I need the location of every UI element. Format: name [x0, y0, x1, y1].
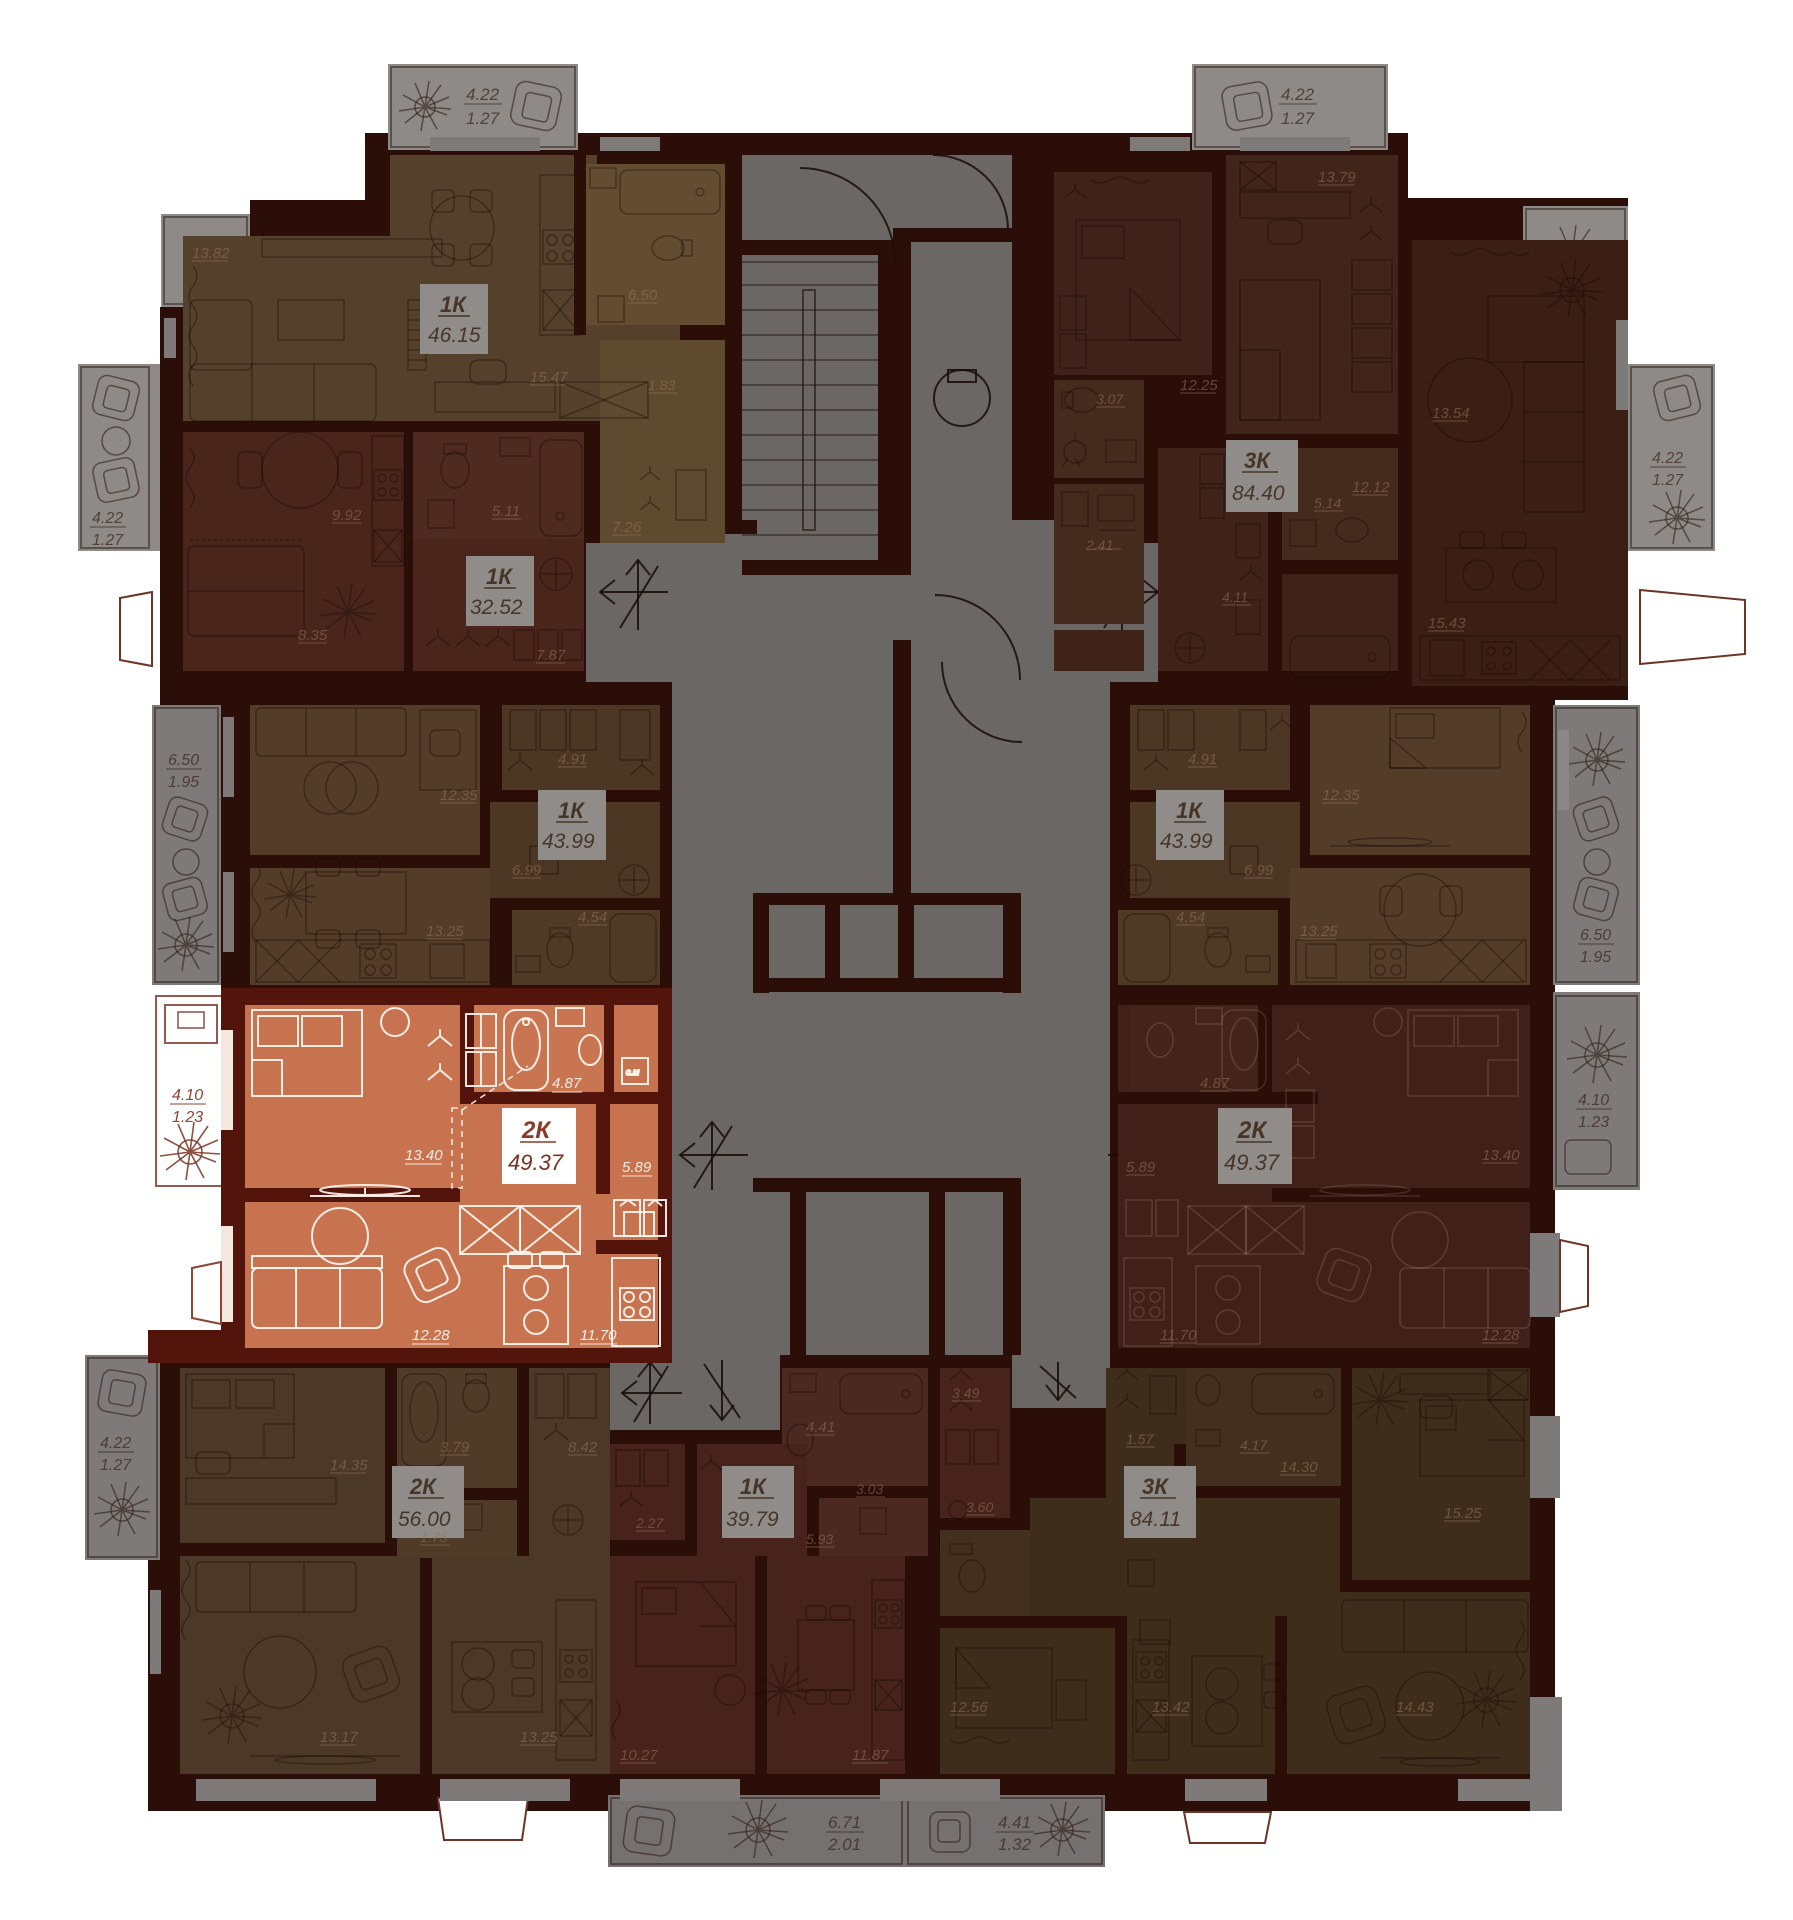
- svg-text:7.87: 7.87: [536, 647, 566, 664]
- svg-text:4.11: 4.11: [1222, 589, 1248, 605]
- svg-text:12.12: 12.12: [1352, 479, 1390, 496]
- svg-text:14.35: 14.35: [330, 1457, 368, 1474]
- svg-text:4.87: 4.87: [552, 1075, 582, 1092]
- svg-text:2К: 2К: [521, 1117, 552, 1144]
- svg-text:6.99: 6.99: [512, 862, 542, 879]
- svg-text:3.60: 3.60: [966, 1499, 993, 1515]
- svg-text:1К: 1К: [558, 798, 585, 823]
- svg-text:1К: 1К: [1176, 798, 1203, 823]
- svg-text:12.28: 12.28: [1482, 1327, 1520, 1344]
- svg-text:9.92: 9.92: [332, 507, 362, 524]
- svg-text:12.35: 12.35: [440, 787, 478, 804]
- svg-text:1.27: 1.27: [1652, 472, 1684, 489]
- svg-text:5.14: 5.14: [1314, 495, 1341, 511]
- svg-text:4.22: 4.22: [92, 510, 123, 527]
- svg-text:15.25: 15.25: [1444, 1505, 1482, 1522]
- svg-text:1К: 1К: [486, 564, 513, 589]
- svg-text:13.54: 13.54: [1432, 405, 1470, 422]
- svg-text:с.м: с.м: [626, 1067, 639, 1077]
- svg-text:12.25: 12.25: [1180, 377, 1218, 394]
- svg-text:6.50: 6.50: [628, 287, 658, 304]
- svg-text:4.41: 4.41: [806, 1419, 835, 1436]
- svg-text:4.10: 4.10: [1578, 1092, 1609, 1109]
- svg-text:13.17: 13.17: [320, 1729, 358, 1746]
- svg-text:2.27: 2.27: [635, 1515, 664, 1531]
- svg-text:1.27: 1.27: [100, 1457, 132, 1474]
- svg-text:12.28: 12.28: [412, 1327, 450, 1344]
- svg-text:1.75: 1.75: [420, 1529, 447, 1545]
- svg-text:3К: 3К: [1142, 1474, 1169, 1499]
- svg-text:43.99: 43.99: [1160, 830, 1213, 853]
- svg-text:6.50: 6.50: [168, 752, 199, 769]
- svg-text:43.99: 43.99: [542, 830, 595, 853]
- svg-text:8.42: 8.42: [568, 1439, 598, 1456]
- svg-text:3.07: 3.07: [1096, 391, 1124, 407]
- svg-text:56.00: 56.00: [398, 1508, 451, 1531]
- svg-text:4.17: 4.17: [1240, 1437, 1268, 1453]
- svg-text:12.56: 12.56: [950, 1699, 988, 1716]
- svg-text:4.10: 4.10: [172, 1087, 203, 1104]
- svg-text:84.11: 84.11: [1130, 1508, 1181, 1531]
- svg-text:1.23: 1.23: [172, 1109, 203, 1126]
- svg-text:4.22: 4.22: [100, 1435, 131, 1452]
- svg-text:13.40: 13.40: [1482, 1147, 1520, 1164]
- svg-text:49.37: 49.37: [1224, 1150, 1280, 1175]
- svg-text:11.70: 11.70: [1160, 1327, 1197, 1344]
- svg-text:13.40: 13.40: [405, 1147, 443, 1164]
- svg-text:4.22: 4.22: [1652, 450, 1683, 467]
- svg-text:1.95: 1.95: [168, 774, 199, 791]
- svg-text:1.27: 1.27: [466, 109, 500, 128]
- svg-text:1.23: 1.23: [1578, 1114, 1609, 1131]
- svg-text:4.87: 4.87: [1200, 1075, 1230, 1092]
- svg-text:4.41: 4.41: [998, 1813, 1031, 1832]
- svg-text:1.32: 1.32: [998, 1835, 1032, 1854]
- svg-text:2К: 2К: [409, 1474, 437, 1499]
- svg-text:11.70: 11.70: [580, 1327, 617, 1344]
- svg-text:13.25: 13.25: [1300, 923, 1338, 940]
- svg-text:1.27: 1.27: [1281, 109, 1315, 128]
- svg-text:12.35: 12.35: [1322, 787, 1360, 804]
- svg-text:4.91: 4.91: [1188, 751, 1217, 768]
- svg-text:7.26: 7.26: [612, 519, 642, 536]
- svg-text:6.50: 6.50: [1580, 927, 1611, 944]
- svg-text:1К: 1К: [740, 1474, 767, 1499]
- svg-text:2.01: 2.01: [827, 1835, 861, 1854]
- svg-text:5.89: 5.89: [1126, 1159, 1156, 1176]
- svg-text:39.79: 39.79: [726, 1508, 779, 1531]
- svg-text:5.89: 5.89: [622, 1159, 652, 1176]
- svg-text:14.30: 14.30: [1280, 1459, 1318, 1476]
- svg-text:4.22: 4.22: [466, 85, 500, 104]
- svg-text:10.27: 10.27: [620, 1747, 658, 1764]
- svg-text:1К: 1К: [440, 292, 467, 317]
- svg-text:2.41: 2.41: [1085, 537, 1113, 553]
- svg-text:13.79: 13.79: [1318, 169, 1356, 186]
- svg-text:14.43: 14.43: [1396, 1699, 1434, 1716]
- svg-text:1.57: 1.57: [1126, 1431, 1154, 1447]
- svg-text:13.25: 13.25: [426, 923, 464, 940]
- svg-text:11.87: 11.87: [852, 1747, 889, 1764]
- svg-text:3.03: 3.03: [856, 1481, 883, 1497]
- svg-text:5.93: 5.93: [806, 1531, 833, 1547]
- svg-text:1.95: 1.95: [1580, 949, 1611, 966]
- svg-text:32.52: 32.52: [470, 596, 523, 619]
- svg-text:15.43: 15.43: [1428, 615, 1466, 632]
- svg-text:5.11: 5.11: [492, 503, 520, 520]
- svg-text:6.71: 6.71: [828, 1813, 861, 1832]
- svg-text:13.25: 13.25: [520, 1729, 558, 1746]
- svg-text:2К: 2К: [1237, 1117, 1268, 1144]
- svg-text:4.54: 4.54: [578, 909, 607, 926]
- svg-text:1.27: 1.27: [92, 532, 124, 549]
- svg-text:46.15: 46.15: [428, 324, 481, 347]
- svg-text:8.35: 8.35: [298, 627, 328, 644]
- svg-text:3К: 3К: [1244, 448, 1271, 473]
- svg-text:6.99: 6.99: [1244, 862, 1274, 879]
- svg-text:4.91: 4.91: [558, 751, 587, 768]
- svg-text:1.83: 1.83: [648, 377, 675, 393]
- svg-text:15.47: 15.47: [530, 369, 568, 386]
- svg-text:3.79: 3.79: [440, 1439, 470, 1456]
- svg-text:49.37: 49.37: [508, 1150, 564, 1175]
- svg-text:84.40: 84.40: [1232, 482, 1285, 505]
- svg-text:13.42: 13.42: [1152, 1699, 1190, 1716]
- svg-text:3.49: 3.49: [952, 1385, 979, 1401]
- svg-text:4.54: 4.54: [1176, 909, 1205, 926]
- svg-text:13.82: 13.82: [192, 245, 230, 262]
- svg-text:4.22: 4.22: [1281, 85, 1315, 104]
